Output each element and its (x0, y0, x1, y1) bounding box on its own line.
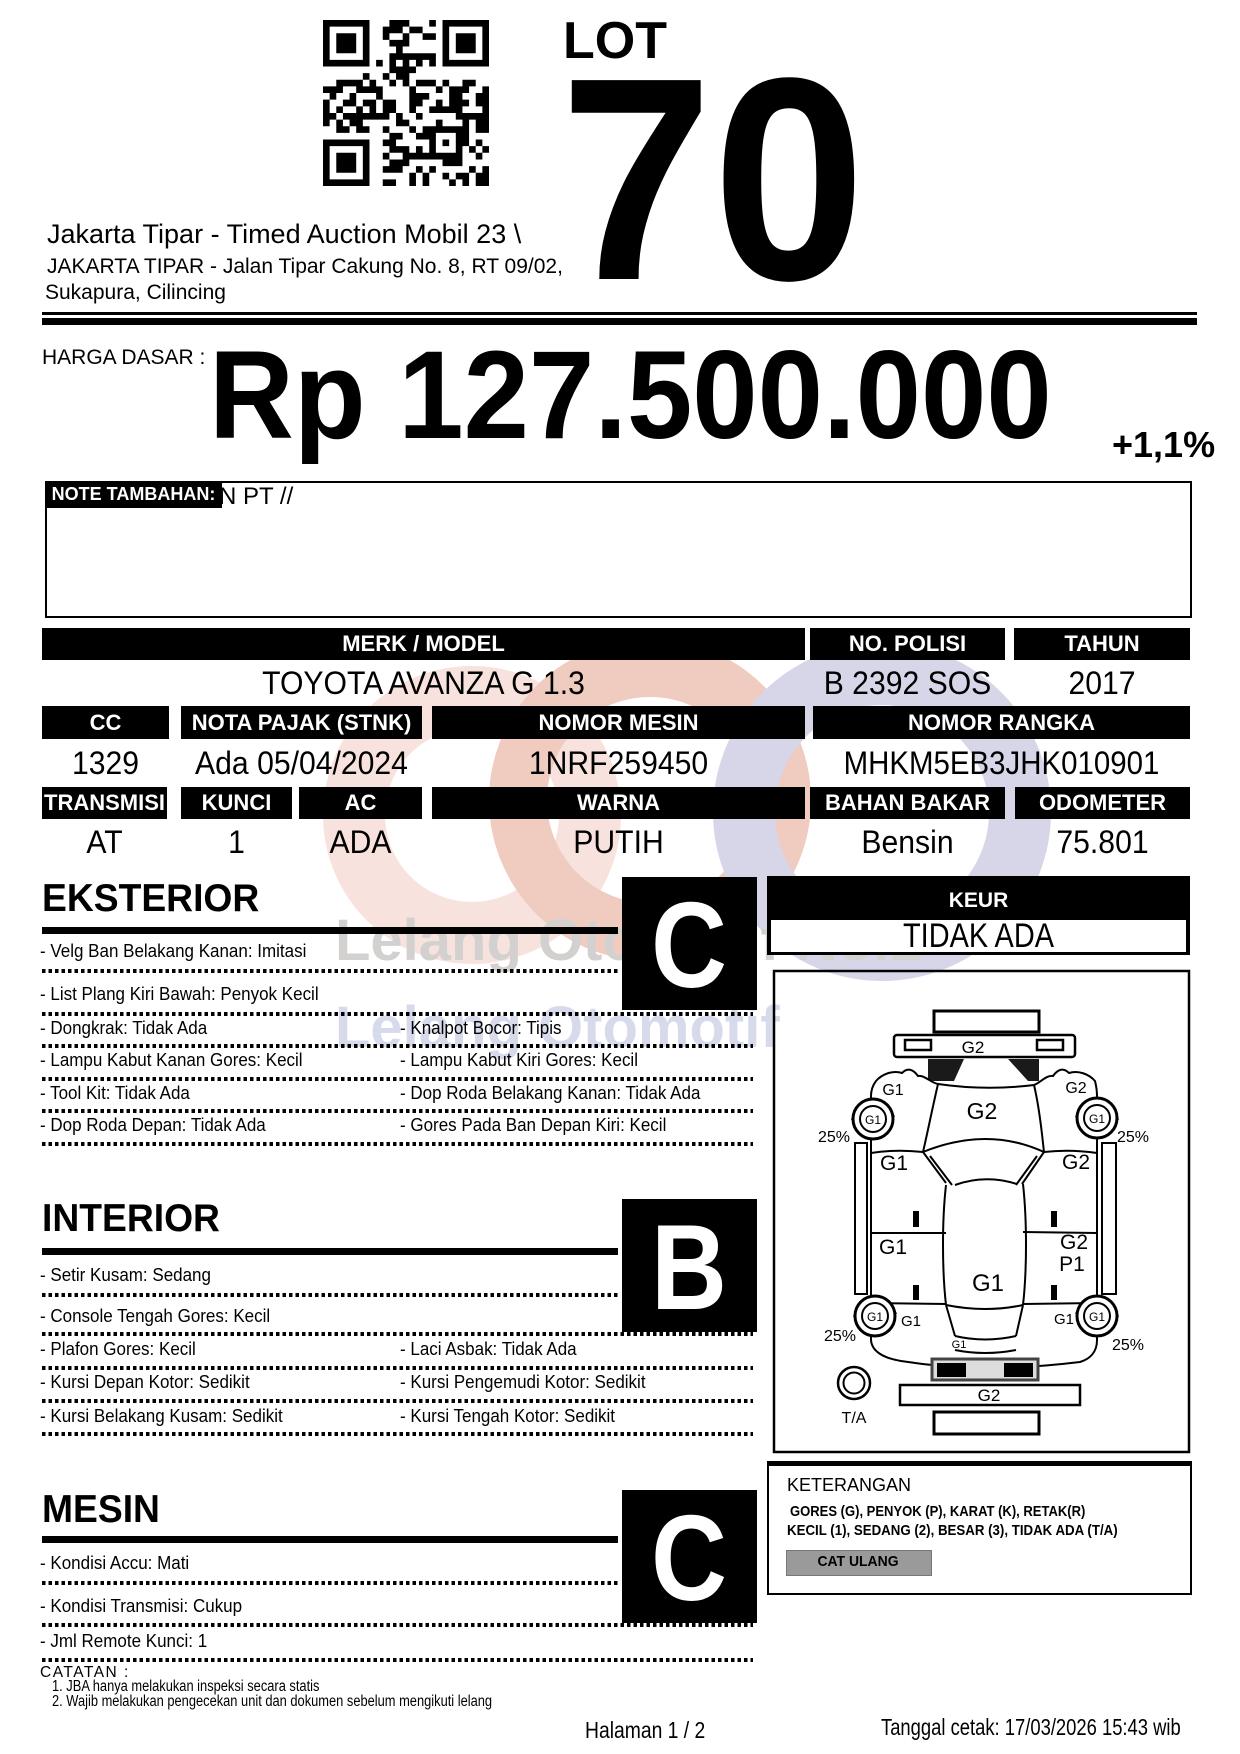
svg-text:G1: G1 (865, 1113, 881, 1127)
svg-text:G1: G1 (867, 1310, 883, 1324)
svg-text:25%: 25% (824, 1328, 856, 1345)
svg-text:G1: G1 (1089, 1310, 1105, 1324)
svg-text:P1: P1 (1059, 1253, 1085, 1276)
svg-text:G2: G2 (1065, 1080, 1086, 1097)
svg-text:25%: 25% (818, 1129, 850, 1146)
svg-text:G1: G1 (882, 1082, 903, 1099)
svg-text:T/A: T/A (842, 1410, 867, 1427)
svg-text:G1: G1 (952, 1339, 967, 1351)
svg-text:G1: G1 (972, 1270, 1004, 1297)
svg-text:25%: 25% (1112, 1337, 1144, 1354)
svg-text:G2: G2 (967, 1098, 998, 1124)
svg-text:G1: G1 (901, 1313, 921, 1330)
svg-text:G1: G1 (1089, 1112, 1105, 1126)
svg-text:G2: G2 (962, 1038, 985, 1057)
svg-text:G1: G1 (1054, 1311, 1074, 1328)
svg-text:G1: G1 (879, 1236, 907, 1259)
svg-text:25%: 25% (1117, 1129, 1149, 1146)
svg-text:G2: G2 (978, 1386, 1001, 1405)
svg-text:G2: G2 (1060, 1231, 1088, 1254)
svg-text:G1: G1 (880, 1152, 908, 1175)
svg-text:G2: G2 (1062, 1151, 1090, 1174)
